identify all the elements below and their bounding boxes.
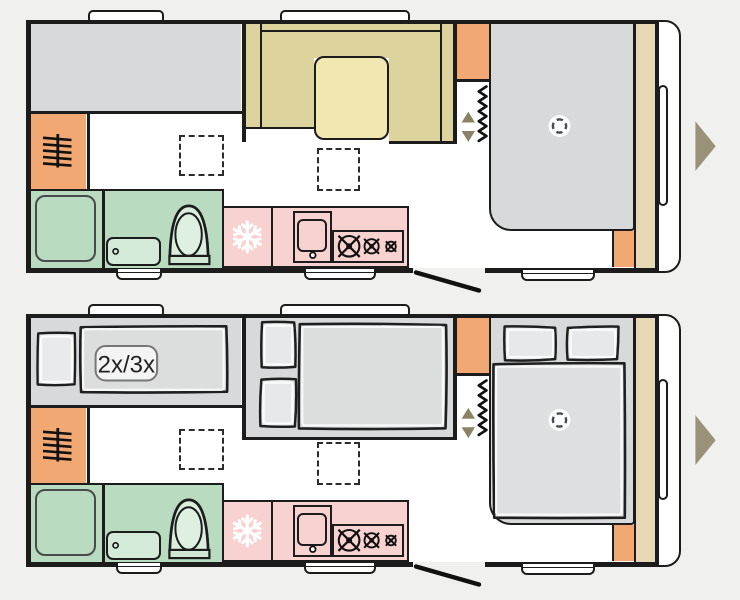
svg-text:2x/3x: 2x/3x [98,352,155,379]
